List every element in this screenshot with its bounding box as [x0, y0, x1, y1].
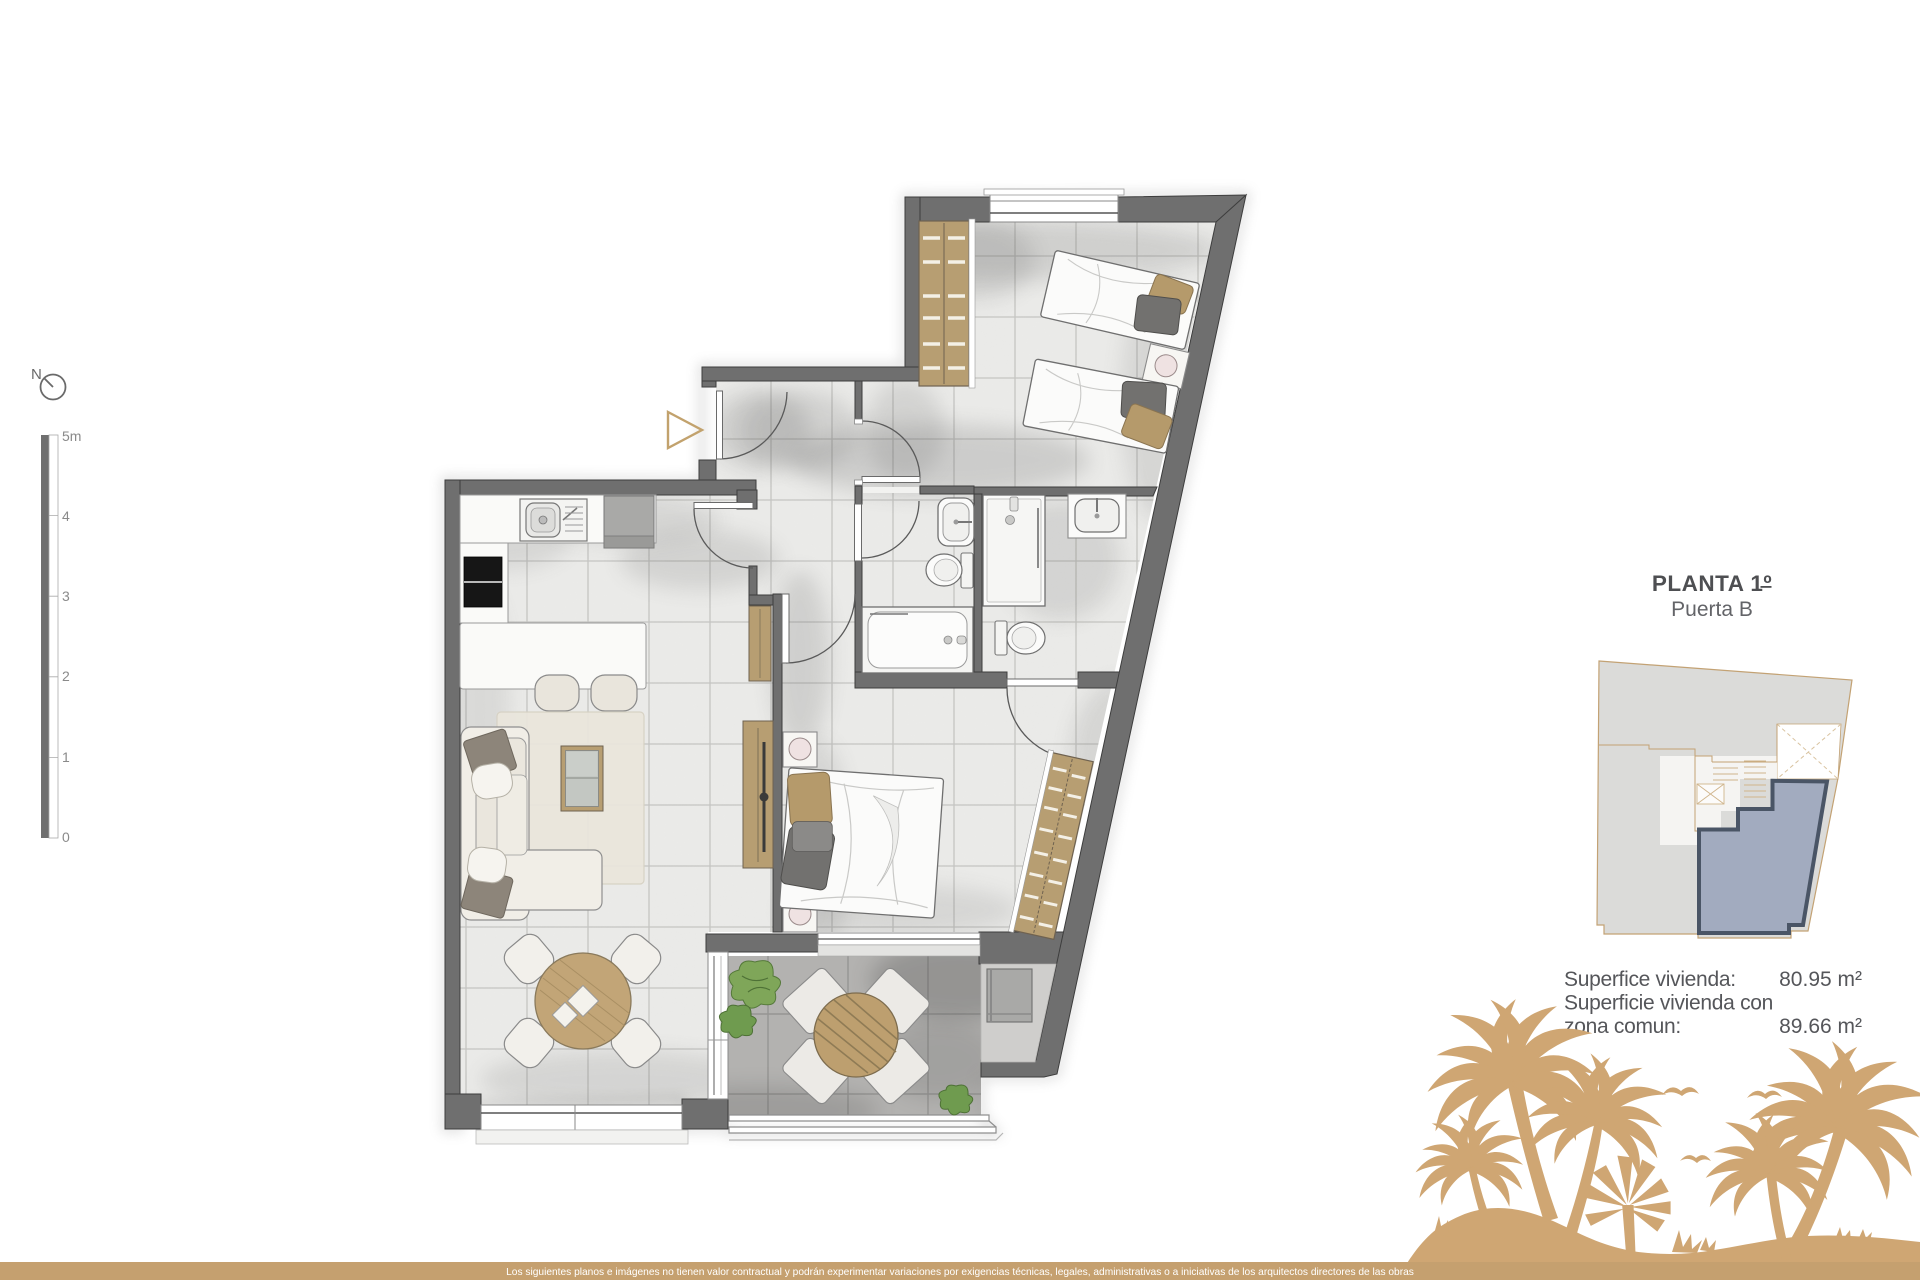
svg-text:3: 3	[62, 588, 70, 604]
svg-text:1: 1	[62, 749, 70, 765]
svg-text:N: N	[31, 366, 42, 383]
svg-text:4: 4	[62, 508, 70, 524]
svg-text:Los siguientes planos e imágen: Los siguientes planos e imágenes no tien…	[506, 1267, 1414, 1278]
svg-text:2: 2	[62, 668, 70, 684]
svg-text:89.66 m²: 89.66 m²	[1779, 1015, 1862, 1038]
svg-text:Superficie vivienda con: Superficie vivienda con	[1564, 992, 1773, 1015]
svg-text:PLANTA 1º: PLANTA 1º	[1652, 571, 1772, 596]
svg-text:Puerta B: Puerta B	[1671, 598, 1753, 621]
svg-text:5m: 5m	[62, 428, 81, 444]
svg-text:Superfice vivienda:: Superfice vivienda:	[1564, 968, 1736, 991]
svg-text:80.95 m²: 80.95 m²	[1779, 968, 1862, 991]
svg-text:0: 0	[62, 829, 70, 845]
